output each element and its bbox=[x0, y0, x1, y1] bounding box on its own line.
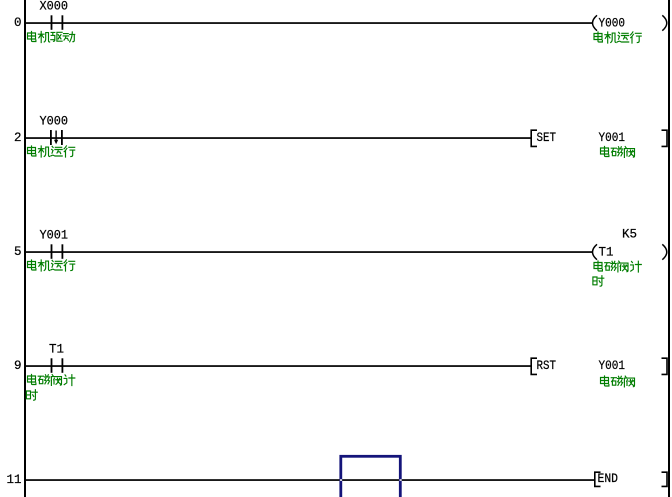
svg-text:SET: SET bbox=[537, 131, 557, 145]
svg-text:5: 5 bbox=[14, 245, 22, 259]
svg-text:RST: RST bbox=[537, 359, 557, 373]
svg-text:END: END bbox=[598, 472, 619, 486]
svg-text:T1: T1 bbox=[599, 246, 614, 260]
svg-text:Y001: Y001 bbox=[599, 131, 626, 145]
svg-text:Y001: Y001 bbox=[40, 229, 69, 243]
svg-text:9: 9 bbox=[14, 359, 22, 373]
svg-text:Y000: Y000 bbox=[599, 17, 626, 31]
svg-text:X000: X000 bbox=[40, 0, 69, 14]
svg-text:2: 2 bbox=[14, 131, 22, 145]
svg-text:T1: T1 bbox=[49, 343, 64, 357]
svg-text:Y001: Y001 bbox=[599, 359, 626, 373]
svg-text:0: 0 bbox=[14, 16, 22, 30]
svg-text:Y000: Y000 bbox=[40, 115, 69, 129]
svg-text:11: 11 bbox=[6, 473, 21, 487]
svg-text:K5: K5 bbox=[622, 228, 637, 242]
